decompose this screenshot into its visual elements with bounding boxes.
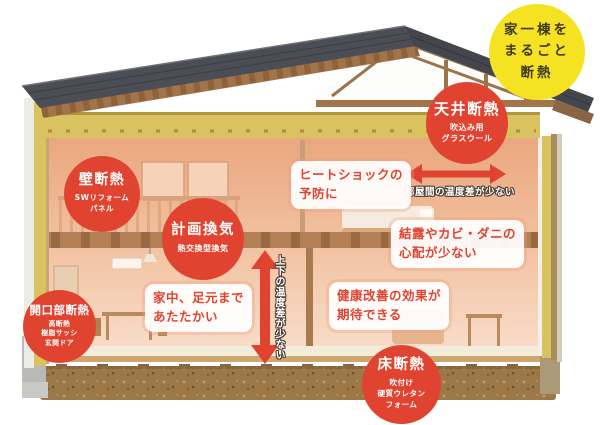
badge-title: 天井断熱 — [434, 101, 500, 118]
badge-subtitle: 熱交換型換気 — [178, 243, 229, 255]
badge-subtitle: 吹込み用 グラスウール — [442, 122, 493, 145]
bubble-text: 家一棟を まるごと 断熱 — [504, 20, 570, 85]
pillow — [420, 209, 432, 218]
callout-health: 健康改善の効果が 期待できる — [329, 282, 449, 330]
callout-heat-shock: ヒートショックの 予防に — [291, 161, 411, 209]
badge-opening-insulation: 開口部断熱 高断熱 樹脂サッシ 玄関ドア — [23, 290, 96, 363]
ground — [40, 366, 556, 400]
callout-warm-feet: 家中、足元まで あたたかい — [145, 284, 252, 332]
badge-wall-insulation: 壁断熱 SWリフォーム パネル — [64, 156, 140, 232]
badge-subtitle: SWリフォーム パネル — [75, 193, 129, 215]
badge-subtitle: 吹付け 硬質ウレタン フォーム — [378, 378, 426, 411]
badge-title: 床断熱 — [378, 358, 426, 374]
badge-planned-ventilation: 計画換気 熱交換型換気 — [162, 198, 244, 280]
callout-condensation: 結露やカビ・ダニの 心配が少ない — [391, 220, 524, 268]
floor-slab — [46, 346, 540, 356]
desk-top — [466, 314, 502, 318]
badge-title: 計画換気 — [171, 223, 235, 239]
label-room-temp-diff: 部屋間の温度差が少ない — [404, 188, 516, 198]
post-1f — [306, 248, 313, 348]
badge-floor-insulation: 床断熱 吹付け 硬質ウレタン フォーム — [362, 345, 441, 424]
badge-title: 開口部断熱 — [30, 304, 90, 317]
horizontal-temp-arrow — [406, 163, 506, 185]
badge-title: 壁断熱 — [79, 173, 126, 188]
bubble-whole-house: 家一棟を まるごと 断熱 — [489, 4, 585, 100]
infographic-house-insulation: 部屋間の温度差が少ない 上下の温度差が少ない ヒートショックの 予防に 結露やカ… — [0, 0, 600, 425]
window-2f-left — [142, 162, 184, 200]
ac-unit — [112, 258, 142, 269]
window-2f-right — [188, 162, 228, 200]
label-vertical-temp-diff: 上下の温度差が少ない — [273, 255, 284, 361]
right-wall-insulation — [542, 136, 551, 358]
badge-subtitle: 高断熱 樹脂サッシ 玄関ドア — [41, 320, 77, 350]
